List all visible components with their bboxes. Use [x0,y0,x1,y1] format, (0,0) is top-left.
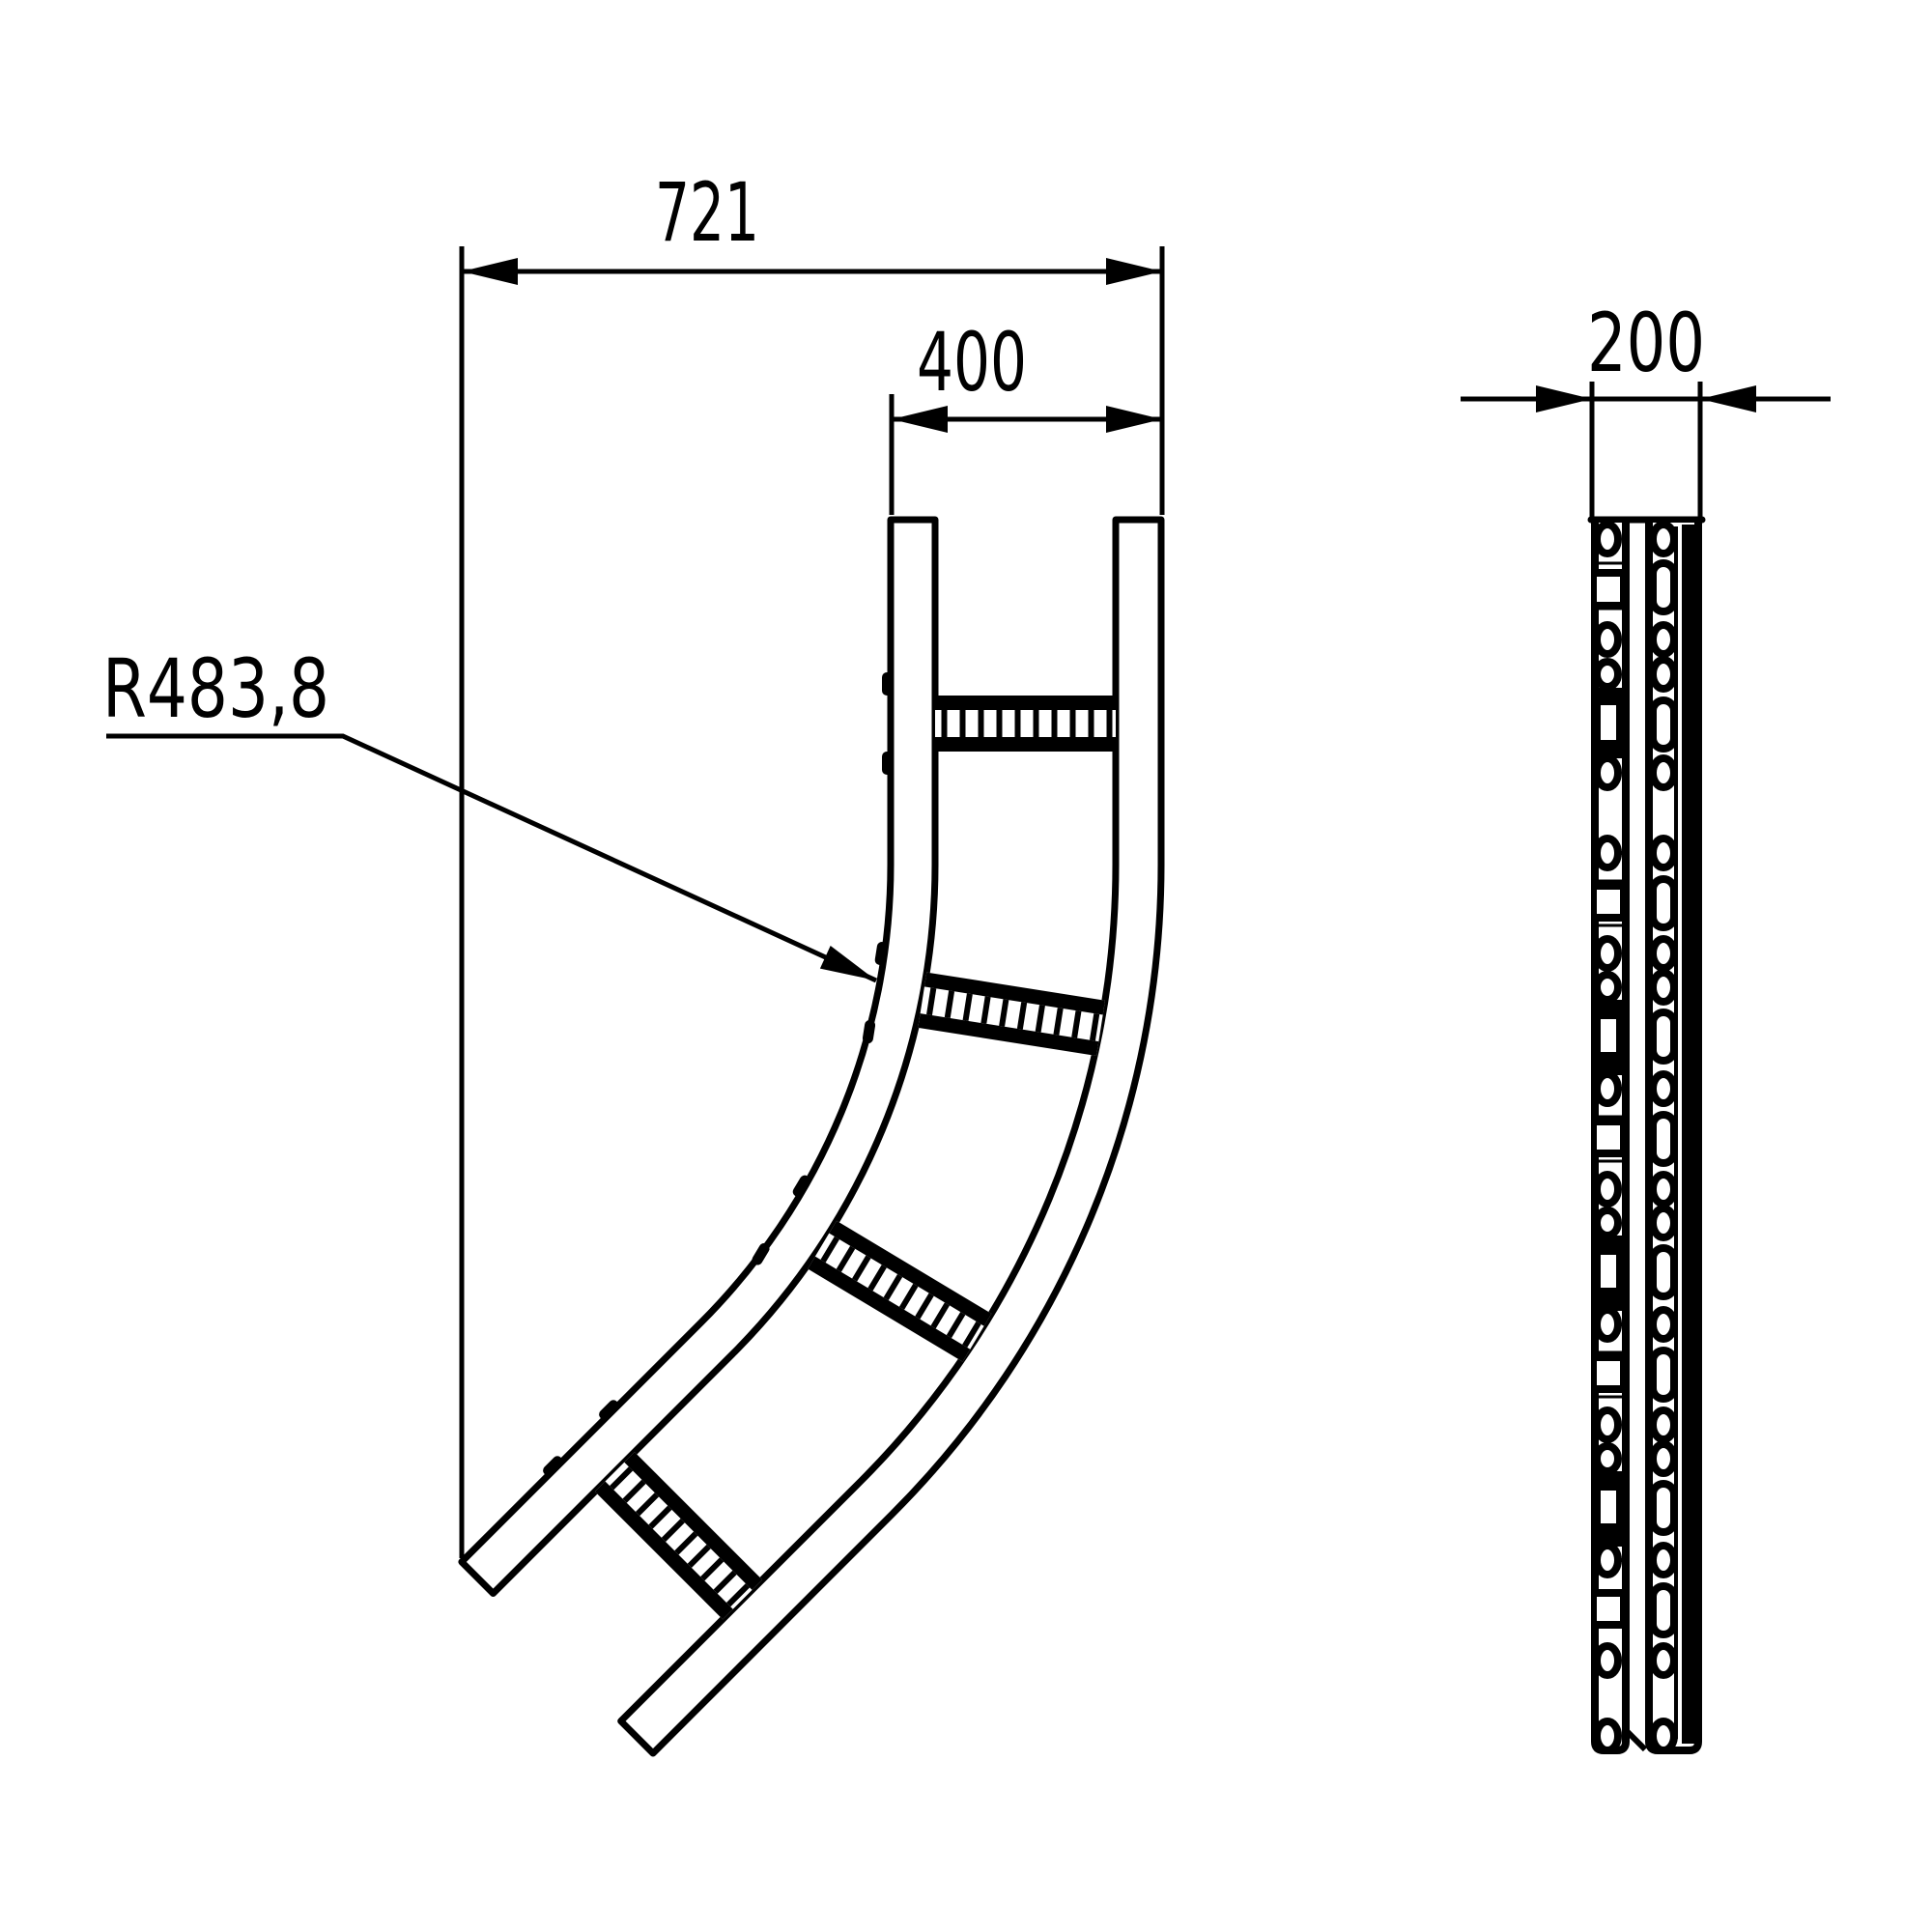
drawing-canvas: 721 400 R483,8 200 [0,0,1932,1932]
side-face-fill [1682,525,1697,1744]
paper-background [0,0,1932,1932]
dim-label-top-width: 400 [917,315,1027,410]
dim-label-depth: 200 [1587,296,1705,390]
technical-drawing: 721 400 R483,8 200 [0,0,1932,1932]
dim-label-overall-width: 721 [655,165,759,260]
dim-label-bend-radius: R483,8 [102,641,329,736]
